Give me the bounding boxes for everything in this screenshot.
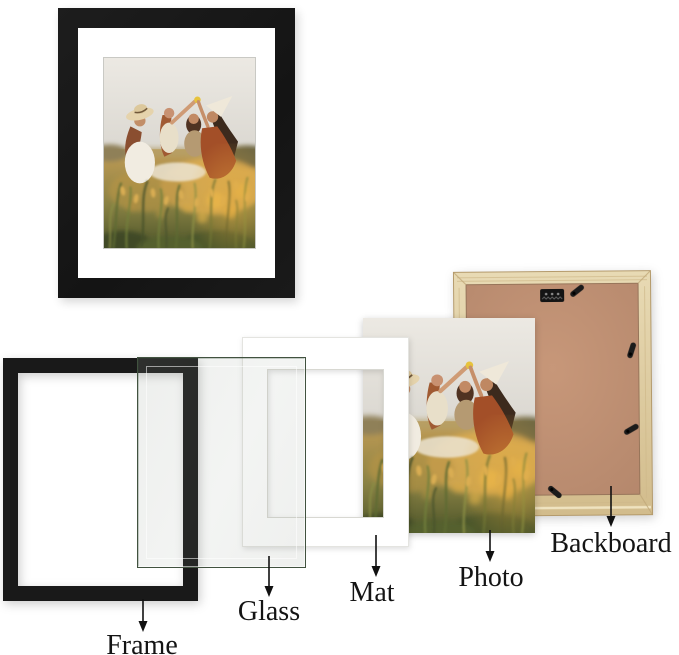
assembled-mat: [78, 28, 275, 278]
arrow-down-icon: [604, 486, 618, 527]
photo-artwork: [104, 58, 255, 248]
arrow-down-icon: [483, 530, 497, 562]
mat-label: Mat: [349, 578, 394, 609]
arrow-down-icon: [136, 599, 150, 632]
frame-label: Frame: [106, 631, 178, 655]
backboard-label: Backboard: [550, 529, 671, 560]
sawtooth-hanger: [540, 289, 564, 302]
photo-label: Photo: [458, 563, 523, 594]
assembled-photo: [104, 58, 255, 248]
assembled-frame: [58, 8, 295, 298]
glass-label: Glass: [238, 597, 300, 628]
product-diagram: Frame Glass Mat Photo Backboard: [0, 0, 679, 655]
arrow-down-icon: [262, 556, 276, 597]
glass-component: [137, 357, 306, 568]
arrow-down-icon: [369, 535, 383, 577]
